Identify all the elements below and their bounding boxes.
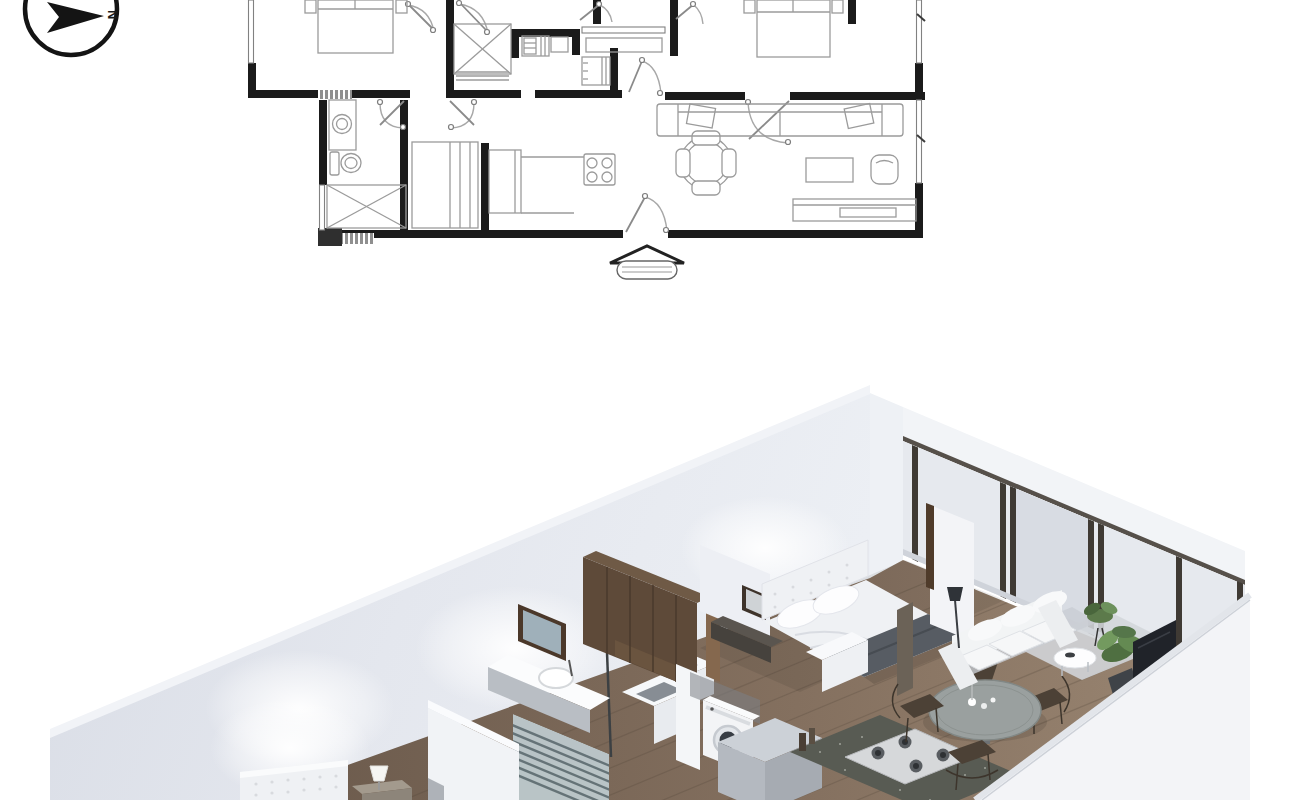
compass-north-label: N (105, 10, 120, 19)
plan-bed-1 (305, 0, 407, 53)
wall-vent-hatch (318, 90, 352, 99)
apartment-listing-image: N (0, 0, 1300, 800)
plan-furniture (305, 0, 916, 228)
bottle (799, 733, 806, 751)
entrance-canopy (610, 246, 684, 279)
corner-pilaster (318, 228, 342, 246)
plan-windows (249, 0, 926, 230)
plan-hall-closet (412, 142, 478, 228)
bottle (809, 728, 815, 744)
plan-kitchen (489, 150, 615, 213)
round-table-top (929, 680, 1041, 740)
floor-plan-2d: N (25, 0, 925, 279)
scene: N (0, 0, 1300, 800)
plan-walls (248, 0, 925, 246)
sill-hatch (342, 233, 374, 244)
plan-doors (378, 1, 791, 233)
round-sink (539, 668, 573, 688)
compass-rose: N (25, 0, 120, 55)
table-tray (1065, 653, 1075, 658)
compass-north-arrow-icon (47, 2, 104, 33)
plan-bathroom-1 (327, 100, 406, 228)
door-jamb (926, 503, 934, 590)
coffee-table (1054, 648, 1096, 668)
plan-dining (676, 131, 736, 195)
plan-living (657, 104, 916, 221)
plan-shower-room (454, 24, 511, 80)
open-door (897, 602, 913, 696)
plan-bed-2 (744, 0, 843, 57)
render-3d-isometric (50, 385, 1300, 800)
